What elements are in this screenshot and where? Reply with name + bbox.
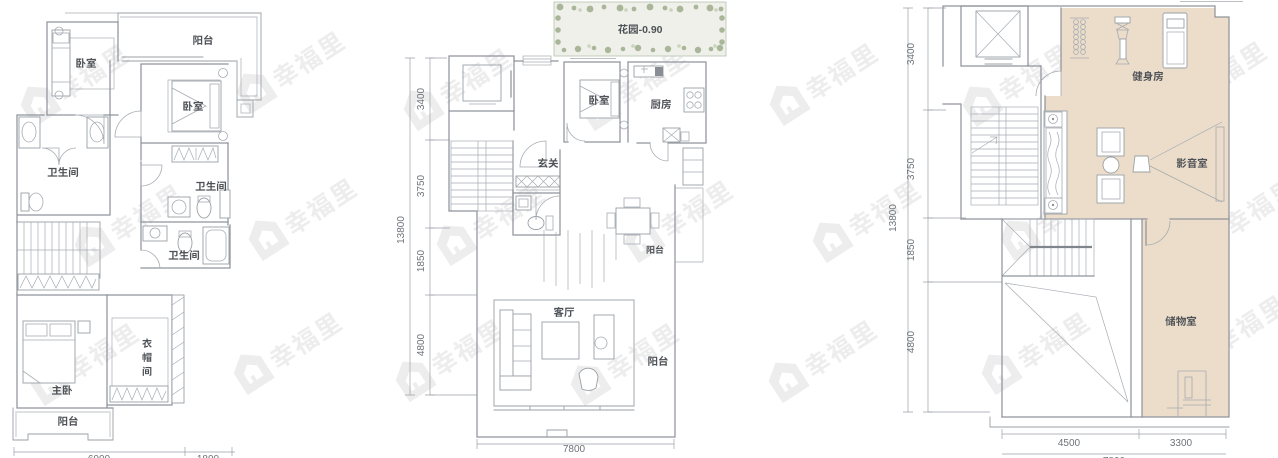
svg-text:6000: 6000 bbox=[88, 454, 111, 458]
svg-text:3750: 3750 bbox=[416, 174, 427, 197]
svg-text:1850: 1850 bbox=[416, 249, 427, 272]
svg-text:7800: 7800 bbox=[563, 444, 586, 455]
svg-text:1850: 1850 bbox=[906, 238, 917, 261]
svg-text:13800: 13800 bbox=[396, 216, 407, 244]
svg-text:3400: 3400 bbox=[416, 87, 427, 110]
svg-text:4800: 4800 bbox=[906, 330, 917, 353]
svg-text:4500: 4500 bbox=[1058, 438, 1081, 449]
svg-text:3400: 3400 bbox=[906, 42, 917, 65]
svg-text:13800: 13800 bbox=[888, 204, 899, 232]
svg-text:1800: 1800 bbox=[197, 454, 220, 458]
svg-text:3750: 3750 bbox=[906, 157, 917, 180]
svg-text:3300: 3300 bbox=[1170, 438, 1193, 449]
svg-text:4800: 4800 bbox=[416, 333, 427, 356]
svg-text:-0.90: -0.90 bbox=[639, 24, 663, 36]
